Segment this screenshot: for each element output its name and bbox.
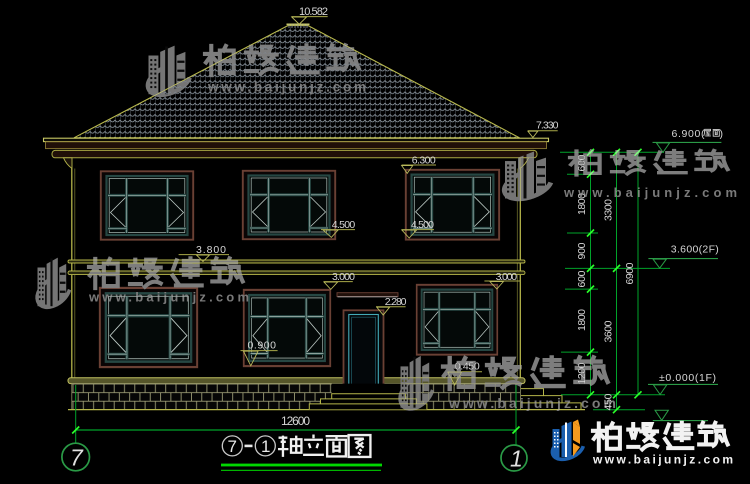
svg-text:6.900(: 6.900( — [672, 128, 706, 140]
svg-text:4.500: 4.500 — [332, 219, 356, 231]
svg-text:0.900: 0.900 — [248, 340, 277, 352]
svg-text:3.800: 3.800 — [196, 244, 226, 256]
svg-text:1: 1 — [261, 437, 270, 456]
svg-text:3300: 3300 — [603, 199, 615, 221]
svg-text:10.582: 10.582 — [299, 6, 328, 18]
svg-text:12600: 12600 — [281, 414, 310, 428]
svg-text:1800: 1800 — [576, 309, 588, 331]
svg-text:6.300: 6.300 — [412, 154, 436, 166]
svg-text:7.330: 7.330 — [536, 120, 559, 132]
svg-text:): ) — [720, 128, 724, 140]
svg-text:4.500: 4.500 — [411, 219, 434, 231]
svg-text:3.000: 3.000 — [496, 271, 518, 283]
svg-text:±0.000(1F): ±0.000(1F) — [659, 372, 716, 384]
svg-text:6900: 6900 — [624, 262, 636, 284]
svg-text:2.280: 2.280 — [385, 296, 407, 308]
svg-text:3600: 3600 — [603, 320, 615, 342]
svg-text:600: 600 — [576, 270, 588, 287]
svg-text:3.000: 3.000 — [332, 271, 355, 283]
svg-text:1: 1 — [510, 446, 523, 472]
svg-text:7: 7 — [228, 437, 237, 456]
svg-text:3.600(2F): 3.600(2F) — [671, 243, 719, 255]
svg-text:7: 7 — [70, 445, 84, 471]
svg-text:900: 900 — [576, 242, 588, 259]
